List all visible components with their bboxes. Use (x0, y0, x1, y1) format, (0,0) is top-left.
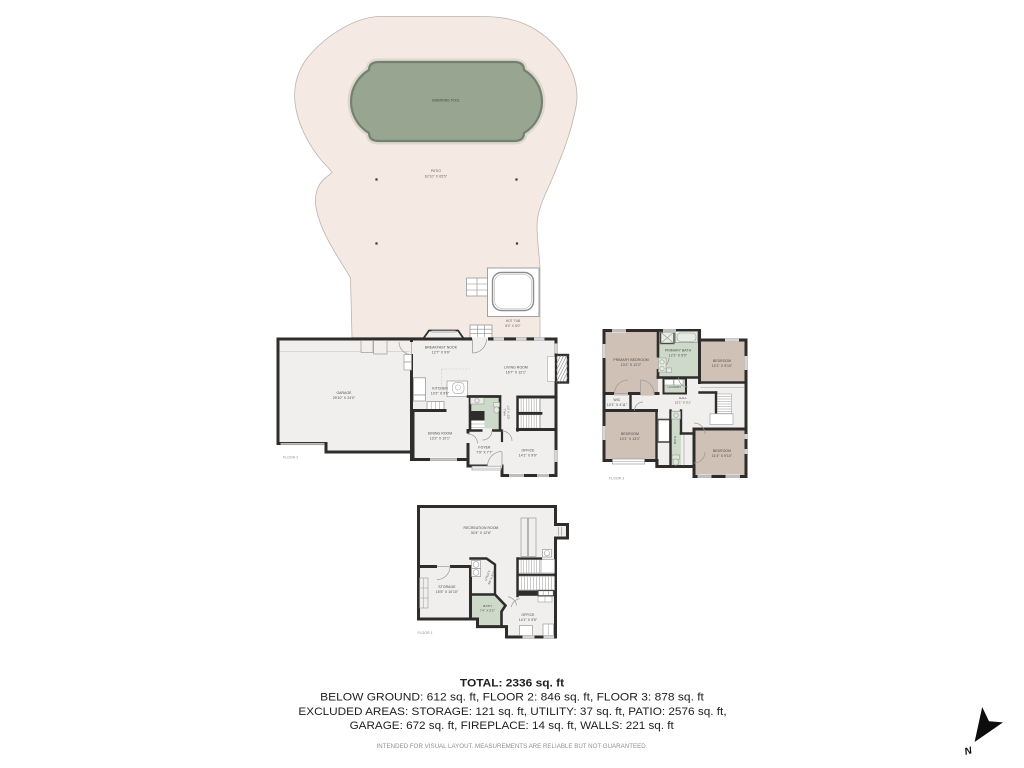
svg-text:GARAGE: 672 sq. ft, FIREPLACE:: GARAGE: 672 sq. ft, FIREPLACE: 14 sq. ft… (350, 720, 674, 732)
svg-text:10'1" X 9'10": 10'1" X 9'10" (712, 364, 733, 368)
svg-text:WIC: WIC (614, 398, 621, 402)
svg-text:RECREATION ROOM: RECREATION ROOM (464, 526, 499, 530)
svg-text:8'0" X 8'0": 8'0" X 8'0" (505, 324, 521, 328)
svg-text:FOYER: FOYER (478, 446, 491, 450)
svg-text:7'9" X 7'7": 7'9" X 7'7" (476, 451, 493, 455)
svg-text:15'5" X 10'10": 15'5" X 10'10" (436, 590, 459, 594)
svg-text:BATH: BATH (673, 436, 677, 444)
svg-text:13'2" X 10'1": 13'2" X 10'1" (430, 437, 451, 441)
svg-text:12'1" X 3'1": 12'1" X 3'1" (675, 401, 692, 405)
svg-text:8'2" X 3'7": 8'2" X 3'7" (507, 405, 511, 419)
svg-text:12'1" X 5'0": 12'1" X 5'0" (669, 354, 688, 358)
svg-text:KITCHEN: KITCHEN (432, 387, 448, 391)
svg-text:INTENDED FOR VISUAL LAYOUT. ME: INTENDED FOR VISUAL LAYOUT. MEASUREMENTS… (377, 743, 648, 750)
svg-text:30'4" X 12'6": 30'4" X 12'6" (471, 531, 492, 535)
svg-text:PRIMARY BATH: PRIMARY BATH (665, 349, 692, 353)
svg-text:TOTAL: 2336 sq. ft: TOTAL: 2336 sq. ft (460, 677, 565, 689)
svg-text:29'10" X 24'0": 29'10" X 24'0" (333, 396, 356, 400)
svg-text:BELOW GROUND: 612 sq. ft, FLOO: BELOW GROUND: 612 sq. ft, FLOOR 2: 846 s… (320, 691, 704, 703)
svg-text:HALL: HALL (679, 396, 687, 400)
svg-text:HOT TUB: HOT TUB (506, 319, 521, 323)
svg-text:16'7" X 12'1": 16'7" X 12'1" (506, 371, 527, 375)
svg-text:10'2" X 9'9": 10'2" X 9'9" (431, 392, 450, 396)
svg-text:BEDROOM: BEDROOM (621, 432, 639, 436)
svg-text:OFFICE: OFFICE (521, 449, 535, 453)
svg-text:11'4" X 9'10": 11'4" X 9'10" (712, 454, 733, 458)
svg-text:FLOOR 1: FLOOR 1 (418, 631, 433, 635)
svg-text:LIVING ROOM: LIVING ROOM (504, 366, 528, 370)
svg-text:SWIMMING POOL: SWIMMING POOL (432, 99, 460, 103)
svg-text:LAUNDRY: LAUNDRY (667, 385, 681, 389)
svg-text:EXCLUDED AREAS: STORAGE: 121 s: EXCLUDED AREAS: STORAGE: 121 sq. ft, UTI… (298, 706, 726, 718)
svg-text:10'1" X 13'1": 10'1" X 13'1" (620, 437, 641, 441)
svg-text:FLOOR 2: FLOOR 2 (283, 456, 298, 460)
svg-text:PRIMARY BEDROOM: PRIMARY BEDROOM (613, 358, 648, 362)
svg-text:GARAGE: GARAGE (336, 391, 352, 395)
svg-text:10'1" X 4'11": 10'1" X 4'11" (607, 403, 628, 407)
svg-text:FLOOR 3: FLOOR 3 (609, 477, 624, 481)
svg-text:BATH: BATH (483, 604, 491, 608)
svg-text:62'10" X 65'5": 62'10" X 65'5" (425, 175, 448, 179)
svg-text:PATIO: PATIO (431, 169, 441, 173)
svg-text:BREAKFAST NOOK: BREAKFAST NOOK (425, 346, 458, 350)
svg-text:BEDROOM: BEDROOM (713, 449, 731, 453)
svg-text:14'1" X 9'5": 14'1" X 9'5" (519, 618, 538, 622)
svg-text:12'7" X 9'9": 12'7" X 9'9" (432, 351, 451, 355)
svg-text:13'1" X 12'2": 13'1" X 12'2" (621, 363, 642, 367)
svg-text:BEDROOM: BEDROOM (713, 359, 731, 363)
svg-text:OFFICE: OFFICE (521, 613, 535, 617)
svg-text:14'1" X 9'9": 14'1" X 9'9" (519, 454, 538, 458)
svg-text:7'4" X 5'5": 7'4" X 5'5" (480, 609, 495, 613)
svg-text:STORAGE: STORAGE (438, 585, 456, 589)
svg-text:DINING ROOM: DINING ROOM (428, 432, 453, 436)
